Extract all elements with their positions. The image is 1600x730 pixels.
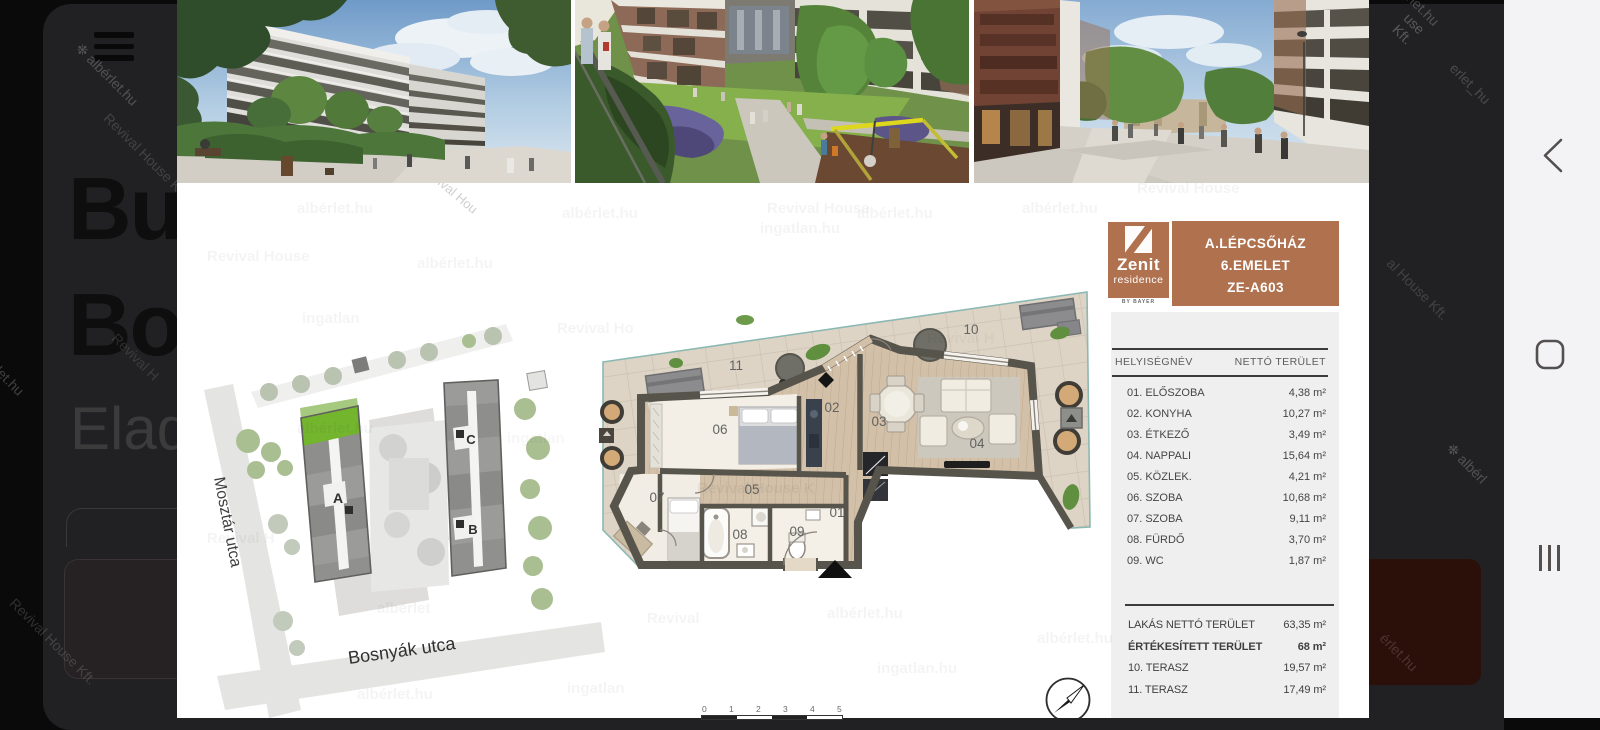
svg-text:B: B bbox=[468, 522, 477, 537]
svg-text:02: 02 bbox=[824, 400, 839, 415]
svg-text:01: 01 bbox=[829, 505, 844, 520]
svg-text:09: 09 bbox=[789, 524, 804, 539]
svg-text:C: C bbox=[466, 432, 476, 447]
svg-text:03: 03 bbox=[871, 414, 886, 429]
svg-text:A: A bbox=[333, 490, 343, 506]
svg-text:11: 11 bbox=[729, 358, 743, 373]
svg-text:07: 07 bbox=[649, 490, 664, 505]
svg-text:08: 08 bbox=[732, 527, 747, 542]
svg-text:04: 04 bbox=[969, 436, 985, 451]
svg-text:06: 06 bbox=[712, 422, 727, 437]
